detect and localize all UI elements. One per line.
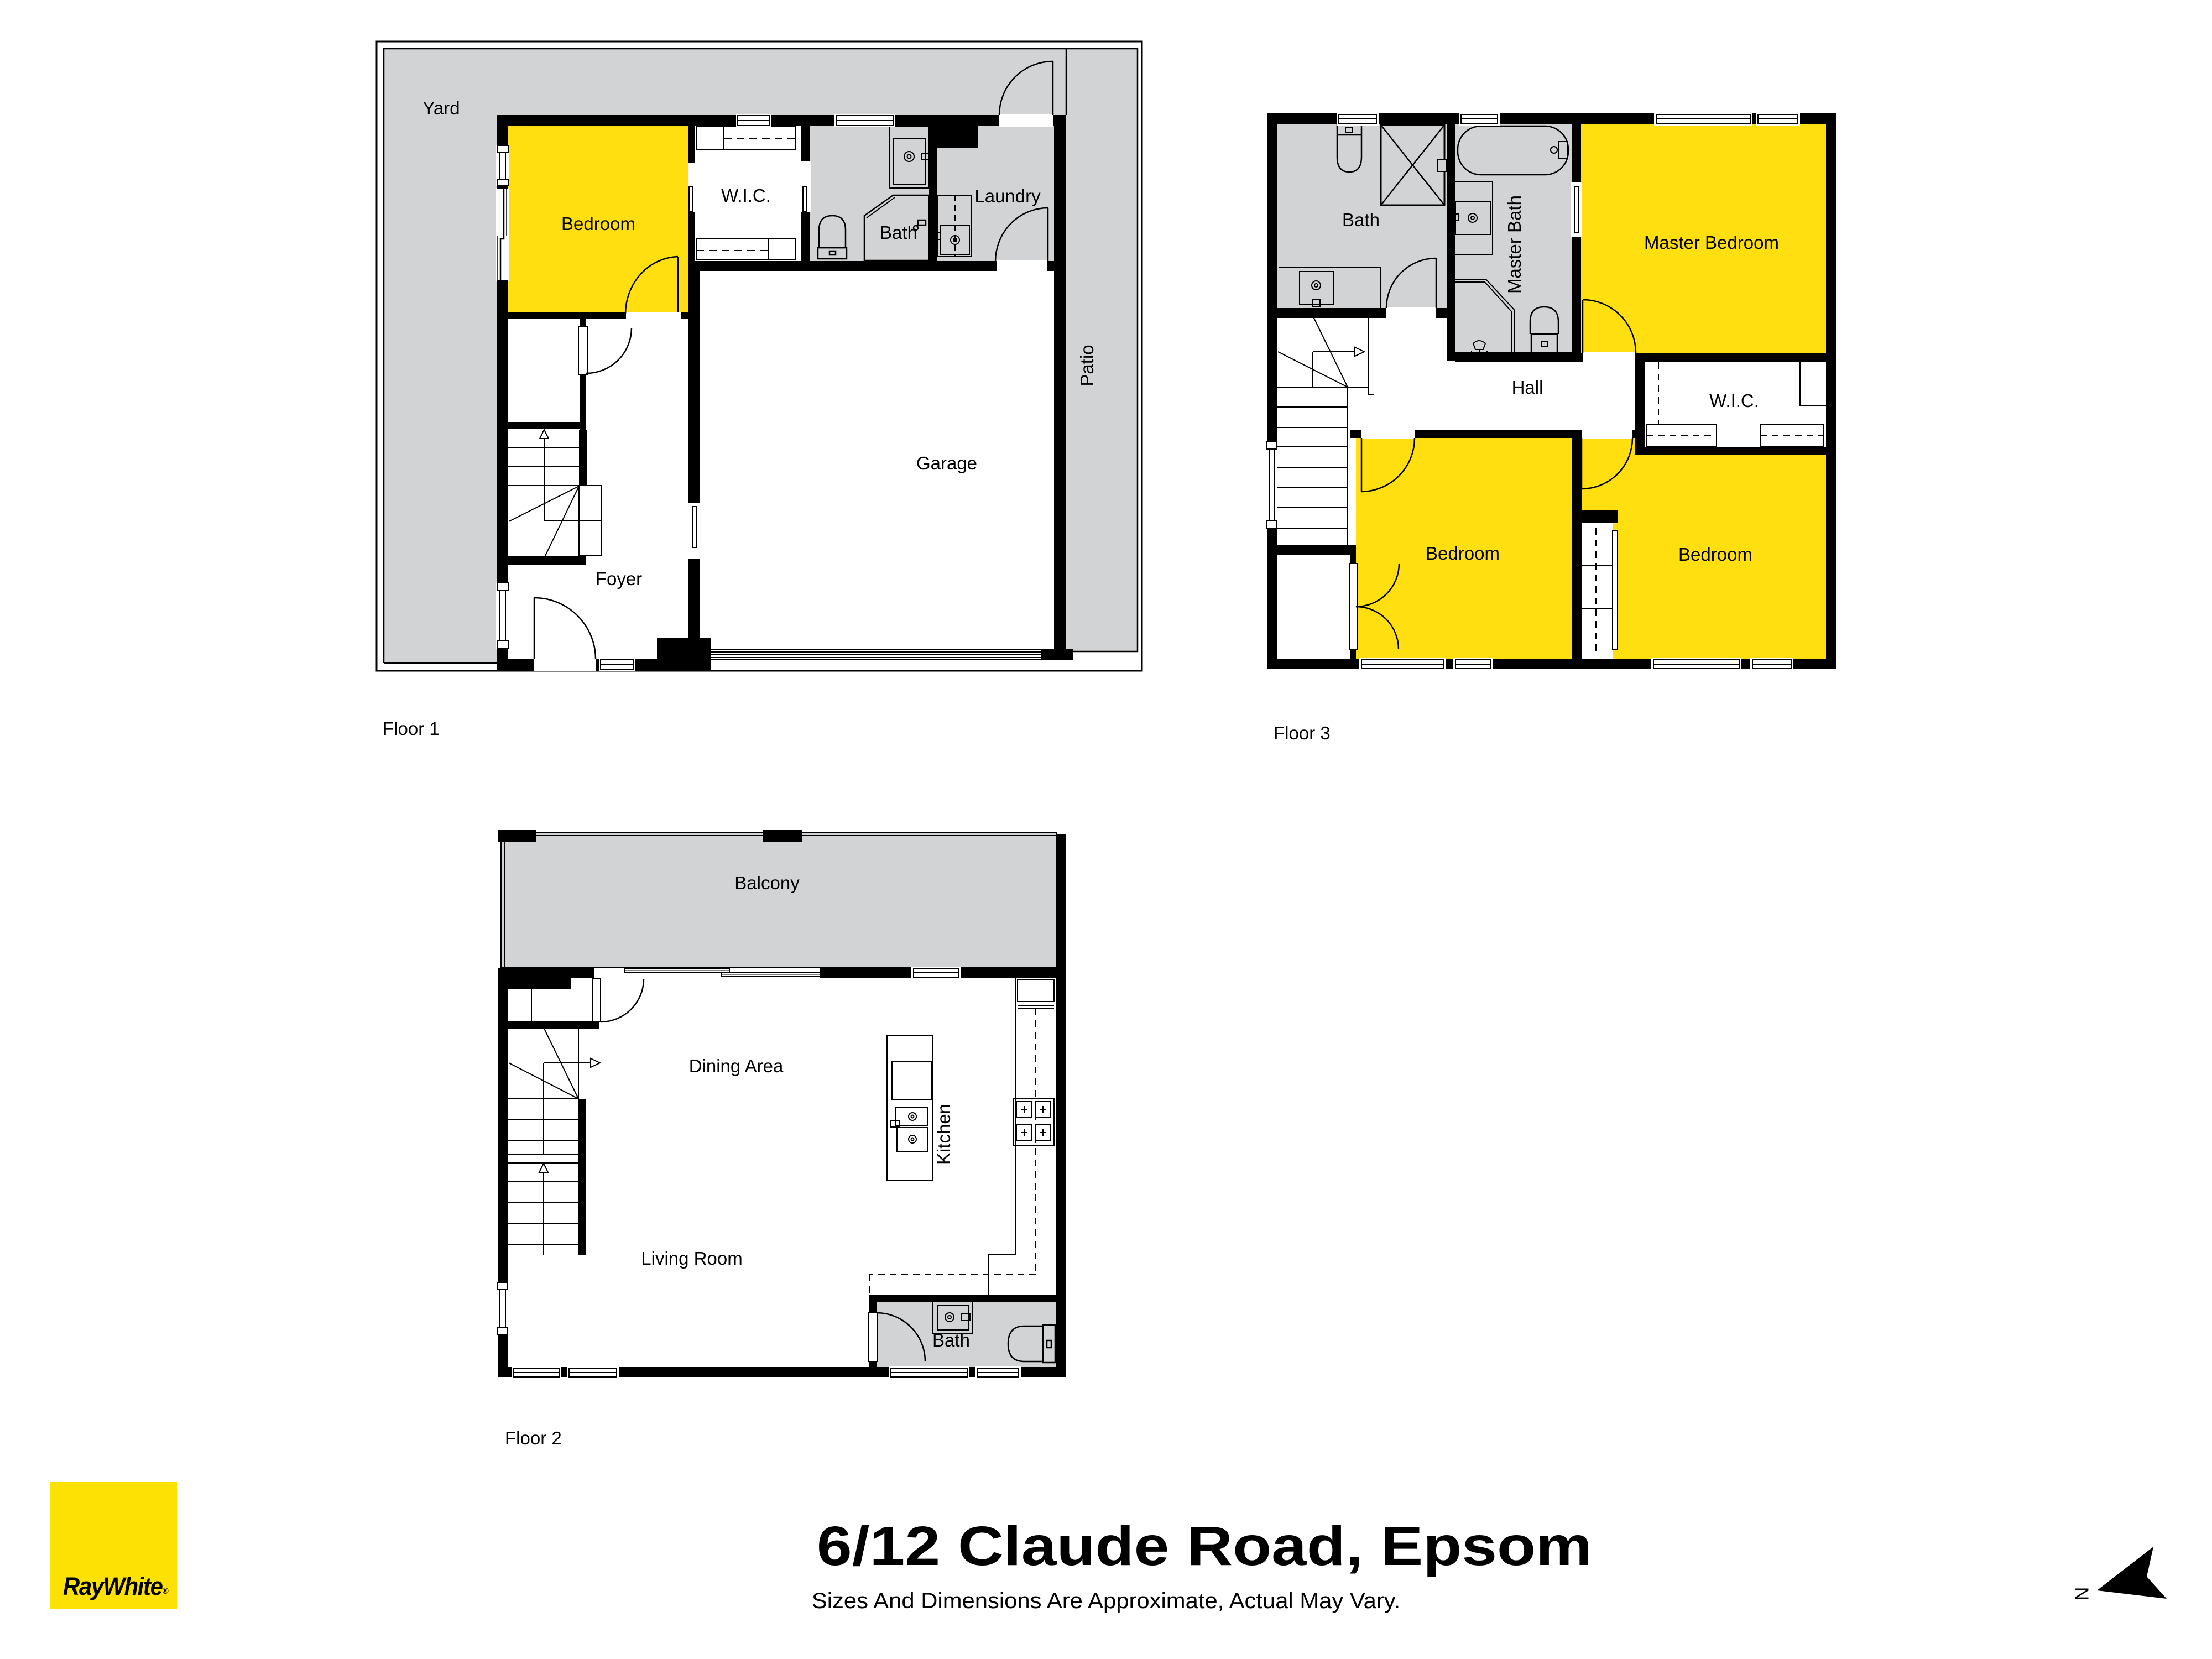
svg-text:Yard: Yard: [422, 98, 460, 118]
svg-text:Foyer: Foyer: [596, 568, 642, 589]
svg-text:RayWhite®: RayWhite®: [63, 1573, 169, 1601]
svg-text:Master Bedroom: Master Bedroom: [1644, 232, 1779, 253]
svg-text:Sizes And Dimensions Are Appro: Sizes And Dimensions Are Approximate, Ac…: [812, 1588, 1400, 1613]
svg-text:N: N: [2071, 1587, 2092, 1601]
svg-text:Kitchen: Kitchen: [933, 1104, 954, 1165]
svg-text:Balcony: Balcony: [734, 873, 800, 893]
svg-text:Dining Area: Dining Area: [689, 1056, 784, 1076]
svg-text:Bedroom: Bedroom: [1426, 543, 1500, 564]
svg-text:Bedroom: Bedroom: [1678, 544, 1752, 565]
svg-text:W.I.C.: W.I.C.: [721, 185, 771, 206]
svg-text:Floor 2: Floor 2: [505, 1428, 562, 1448]
svg-text:Bedroom: Bedroom: [561, 213, 635, 234]
svg-text:Bath: Bath: [932, 1330, 970, 1350]
svg-text:Garage: Garage: [916, 453, 977, 473]
svg-text:W.I.C.: W.I.C.: [1709, 390, 1759, 411]
svg-text:Patio: Patio: [1077, 345, 1097, 386]
svg-text:Laundry: Laundry: [974, 186, 1041, 206]
svg-text:Floor 3: Floor 3: [1274, 723, 1331, 743]
svg-text:Floor 1: Floor 1: [383, 718, 440, 739]
svg-text:Bath: Bath: [1342, 210, 1380, 230]
svg-text:6/12 Claude Road, Epsom: 6/12 Claude Road, Epsom: [817, 1515, 1592, 1577]
svg-text:Hall: Hall: [1512, 377, 1543, 398]
svg-text:Bath: Bath: [880, 222, 917, 243]
svg-text:Living Room: Living Room: [641, 1248, 742, 1269]
svg-text:Master Bath: Master Bath: [1504, 195, 1525, 294]
